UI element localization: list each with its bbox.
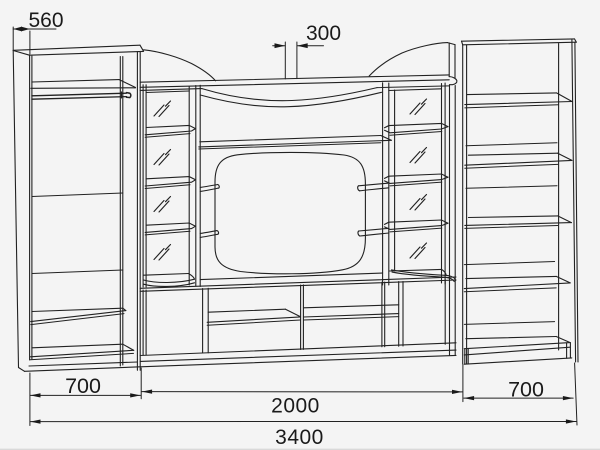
svg-text:560: 560 <box>28 9 63 32</box>
svg-text:700: 700 <box>65 374 101 398</box>
svg-text:2000: 2000 <box>271 394 320 417</box>
svg-text:700: 700 <box>508 377 544 401</box>
svg-text:3400: 3400 <box>275 426 324 449</box>
svg-text:300: 300 <box>306 22 341 45</box>
